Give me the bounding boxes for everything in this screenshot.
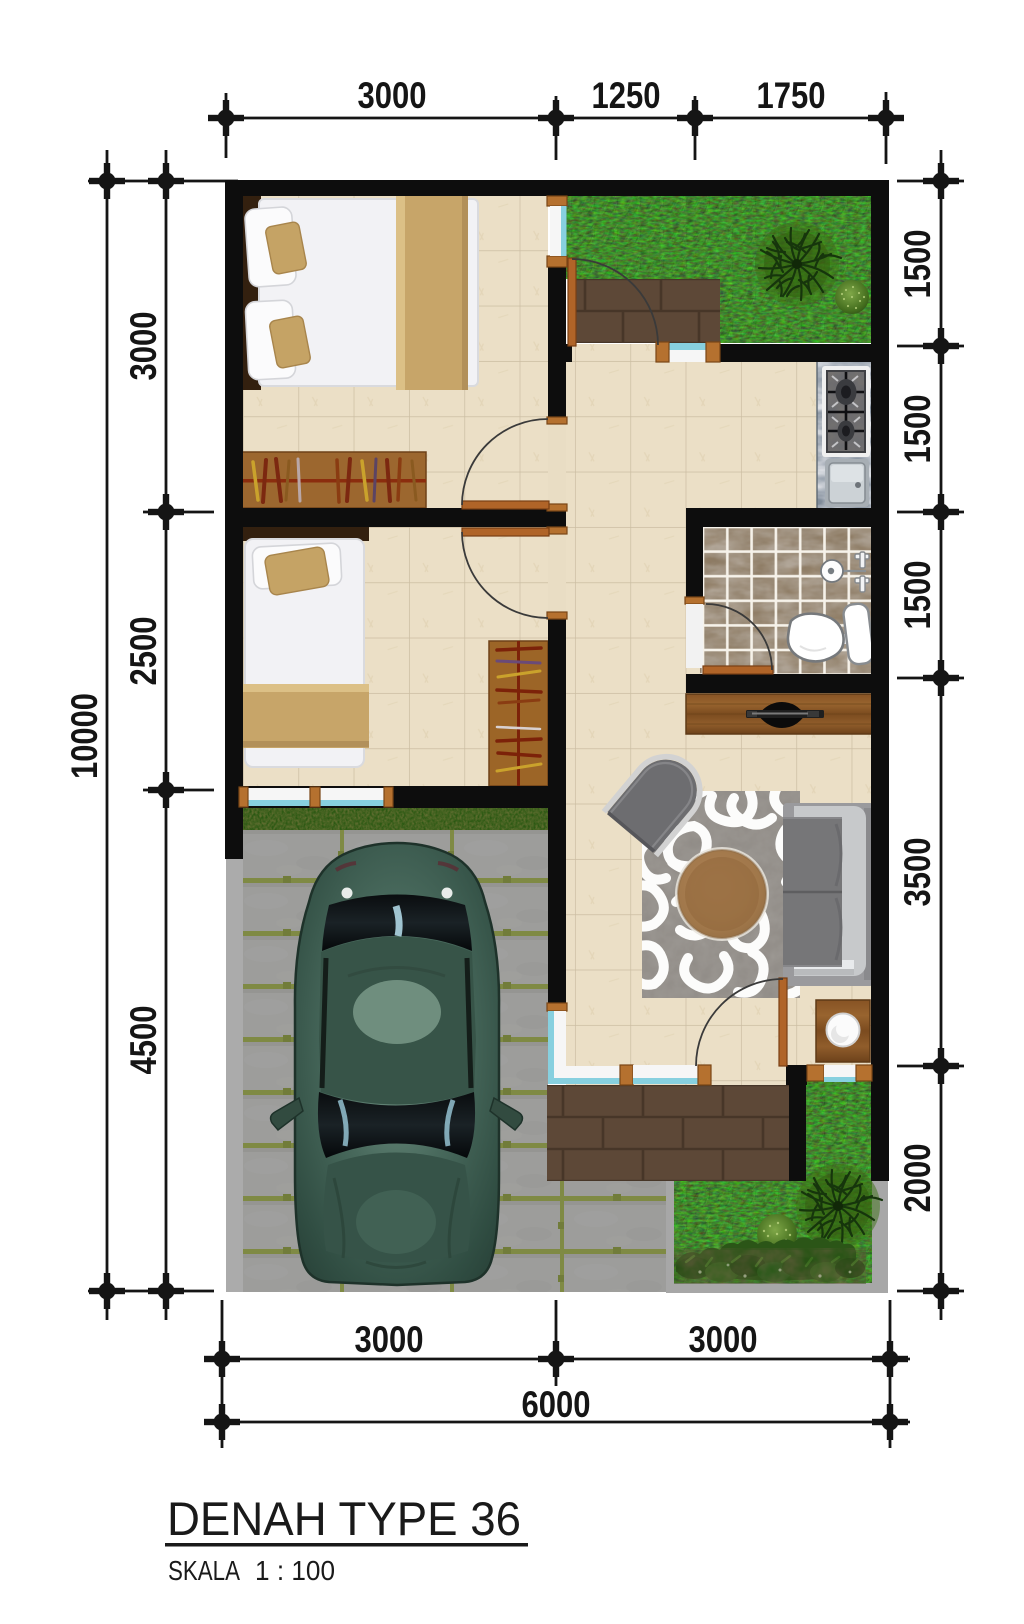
svg-text:1500: 1500 [897,395,938,464]
svg-text:1 : 100: 1 : 100 [255,1555,335,1586]
svg-text:2500: 2500 [123,617,164,686]
svg-text:1750: 1750 [757,75,826,116]
svg-text:6000: 6000 [522,1384,591,1425]
svg-text:3000: 3000 [689,1319,758,1360]
svg-text:1500: 1500 [897,561,938,630]
svg-text:3500: 3500 [897,838,938,907]
svg-text:SKALA: SKALA [168,1555,240,1586]
svg-text:4500: 4500 [123,1006,164,1075]
svg-text:3000: 3000 [358,75,427,116]
svg-text:2000: 2000 [897,1144,938,1213]
svg-text:3000: 3000 [355,1319,424,1360]
svg-text:1500: 1500 [897,230,938,299]
svg-text:1250: 1250 [592,75,661,116]
svg-text:DENAH TYPE 36: DENAH TYPE 36 [167,1492,521,1545]
svg-text:3000: 3000 [123,312,164,381]
svg-text:10000: 10000 [64,693,105,779]
